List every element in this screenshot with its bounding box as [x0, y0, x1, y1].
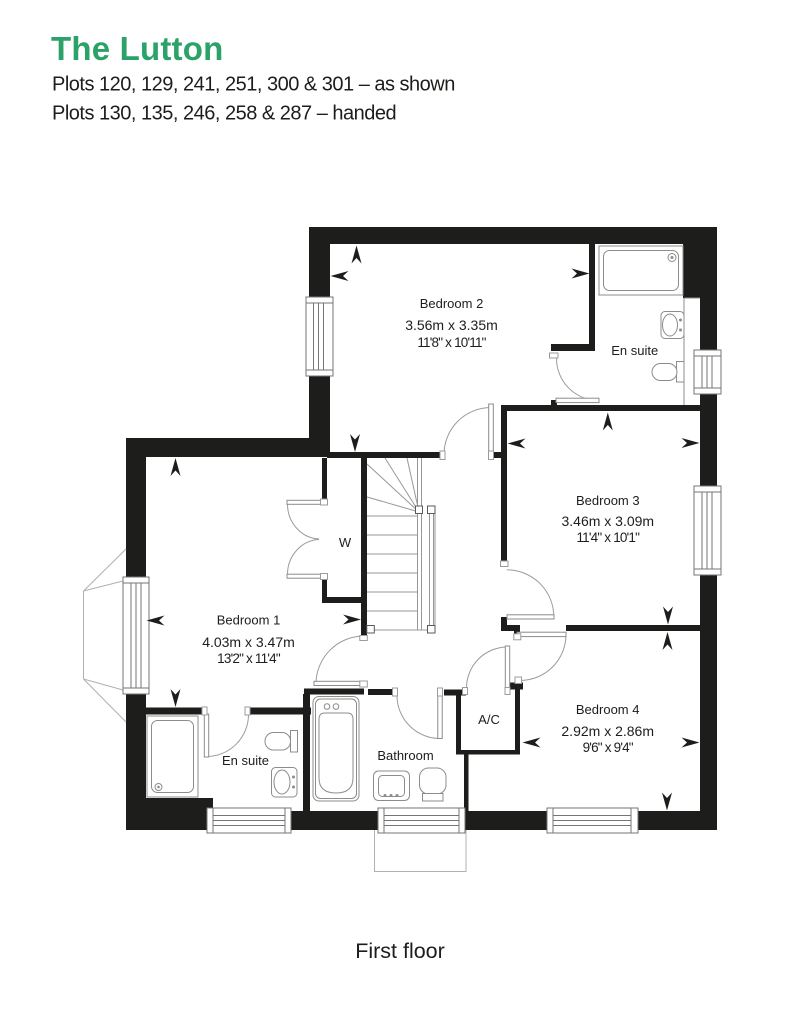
svg-text:Bedroom 3: Bedroom 3	[576, 493, 640, 508]
svg-text:First floor: First floor	[355, 939, 445, 963]
svg-text:Plots 120, 129, 241, 251, 300: Plots 120, 129, 241, 251, 300 & 301 – as…	[52, 74, 455, 96]
svg-text:Bedroom 4: Bedroom 4	[576, 702, 640, 717]
svg-text:2.92m x 2.86m: 2.92m x 2.86m	[561, 723, 654, 739]
svg-text:3.46m x 3.09m: 3.46m x 3.09m	[561, 513, 654, 529]
svg-text:Bedroom 2: Bedroom 2	[420, 296, 484, 311]
svg-text:11'8" x 10'11": 11'8" x 10'11"	[417, 335, 486, 350]
svg-text:9'6" x 9'4": 9'6" x 9'4"	[583, 740, 634, 755]
svg-text:Plots 130, 135, 246, 258 & 287: Plots 130, 135, 246, 258 & 287 – handed	[52, 103, 396, 125]
svg-text:A/C: A/C	[478, 712, 500, 727]
svg-text:11'4" x 10'1": 11'4" x 10'1"	[576, 530, 640, 545]
svg-text:4.03m x 3.47m: 4.03m x 3.47m	[202, 634, 295, 650]
svg-text:The Lutton: The Lutton	[51, 30, 223, 67]
svg-text:En suite: En suite	[611, 343, 658, 358]
svg-text:W: W	[339, 535, 352, 550]
svg-text:3.56m x 3.35m: 3.56m x 3.35m	[405, 317, 498, 333]
svg-text:Bathroom: Bathroom	[377, 748, 433, 763]
svg-text:Bedroom 1: Bedroom 1	[217, 613, 281, 628]
svg-text:En suite: En suite	[222, 753, 269, 768]
svg-text:13'2" x 11'4": 13'2" x 11'4"	[217, 651, 281, 666]
